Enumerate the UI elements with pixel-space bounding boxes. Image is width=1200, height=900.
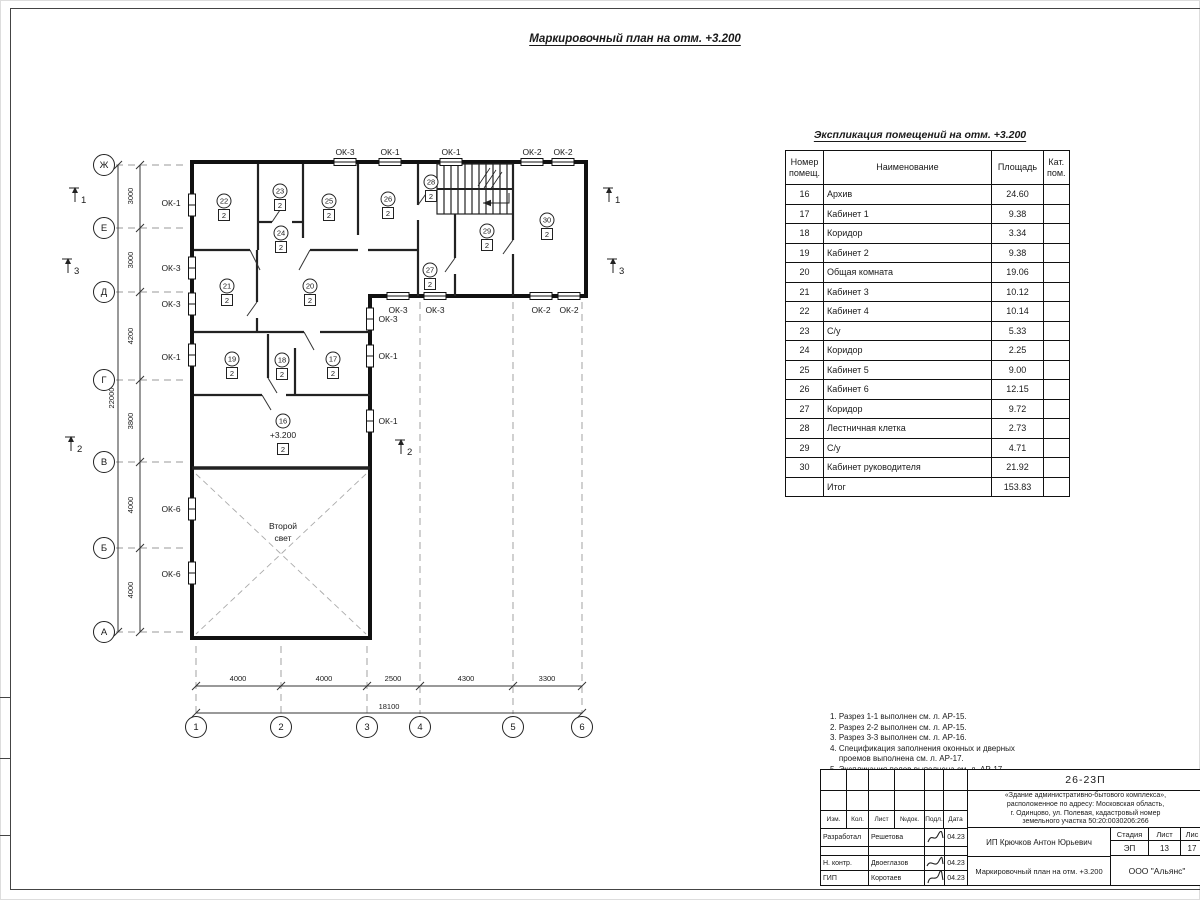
cell-name: Кабинет 2	[823, 243, 991, 263]
dimension-text: 4000	[316, 674, 333, 683]
role: Разработал	[821, 829, 869, 846]
project-code: 26-23П	[968, 770, 1200, 791]
window-label: ОК-3	[161, 299, 180, 309]
table-row: 28Лестничная клетка2.73	[786, 419, 1070, 439]
table-row: 18Коридор3.34	[786, 224, 1070, 244]
description-line: расположенное по адресу: Московская обла…	[968, 801, 1200, 810]
project-description: «Здание административно-бытового комплек…	[968, 791, 1200, 828]
table-row: 22Кабинет 410.14	[786, 302, 1070, 322]
sheet-number: 13	[1149, 841, 1181, 855]
signature-header-row: Изм. Кол. Лист №док. Подл. Дата	[821, 811, 967, 829]
axis-label: Г	[101, 375, 106, 386]
cell-num: 17	[786, 204, 824, 224]
sheet-title: Маркировочный план на отм. +3.200	[968, 857, 1110, 885]
cell-area: 5.33	[991, 321, 1043, 341]
cell-area: 153.83	[991, 477, 1043, 497]
axis-label: А	[101, 627, 108, 638]
room-category: 2	[281, 445, 285, 454]
table-header-row: Номер помещ. Наименование Площадь Кат. п…	[786, 151, 1070, 185]
dimension-text: 4000	[126, 497, 135, 514]
window-label: ОК-3	[161, 263, 180, 273]
table-row: 29С/у4.71	[786, 438, 1070, 458]
window-label: ОК-2	[522, 147, 541, 157]
dimension-text: 2500	[385, 674, 402, 683]
signature-row: Н. контр. Двоеглазов 04.23	[821, 856, 967, 871]
window-label: ОК-1	[378, 351, 397, 361]
sign-date: 04.23	[945, 829, 967, 846]
axis-label: 1	[193, 722, 198, 733]
window-label: ОК-1	[161, 352, 180, 362]
cell-num: 20	[786, 263, 824, 283]
cell-name: С/у	[823, 321, 991, 341]
cell-area: 2.25	[991, 341, 1043, 361]
dimension-text: 4000	[230, 674, 247, 683]
table-row: 23С/у5.33	[786, 321, 1070, 341]
sheet-label: Лист	[1149, 828, 1181, 840]
cell-area: 19.06	[991, 263, 1043, 283]
cell-cat	[1043, 360, 1069, 380]
cell-num: 24	[786, 341, 824, 361]
cell-area: 9.38	[991, 243, 1043, 263]
title-block-right: 26-23П «Здание административно-бытового …	[968, 770, 1200, 885]
role: Н. контр.	[821, 856, 869, 870]
table-row: 24Коридор2.25	[786, 341, 1070, 361]
cell-area: 3.34	[991, 224, 1043, 244]
dimension-text: 3300	[539, 674, 556, 683]
axis-label: Е	[101, 223, 107, 234]
cell-num: 29	[786, 438, 824, 458]
role: ГИП	[821, 871, 869, 885]
dimension-text: 4200	[126, 328, 135, 345]
cell-num: 26	[786, 380, 824, 400]
cell-name: Лестничная клетка	[823, 419, 991, 439]
window-label: ОК-1	[161, 198, 180, 208]
room-category: 2	[222, 211, 226, 220]
col-ndok: №док.	[895, 811, 925, 828]
cell-cat	[1043, 263, 1069, 283]
dimension-lines	[114, 161, 586, 717]
window-label: ОК-3	[335, 147, 354, 157]
room-category: 2	[279, 243, 283, 252]
axis-label: 6	[579, 722, 584, 733]
cell-num: 28	[786, 419, 824, 439]
cell-name: Кабинет 1	[823, 204, 991, 224]
window-label: ОК-6	[161, 504, 180, 514]
axis-label: В	[101, 457, 107, 468]
window-label: ОК-1	[441, 147, 460, 157]
axis-label: 3	[364, 722, 369, 733]
explication-table: Номер помещ. Наименование Площадь Кат. п…	[785, 150, 1070, 497]
table-row: 20Общая комната19.06	[786, 263, 1070, 283]
signature-row: Разработал Решетова 04.23	[821, 829, 967, 847]
section-number: 2	[77, 444, 82, 455]
person-name: Двоеглазов	[869, 856, 925, 870]
notes: 1. Разрез 1-1 выполнен см. л. АР-15.2. Р…	[830, 712, 1015, 775]
room-number: 29	[483, 227, 491, 236]
window-label: ОК-2	[553, 147, 572, 157]
table-row: 26Кабинет 612.15	[786, 380, 1070, 400]
room-number: 24	[277, 229, 285, 238]
window-label: ОК-3	[425, 305, 444, 315]
table-row: 25Кабинет 59.00	[786, 360, 1070, 380]
signature-table: Изм. Кол. Лист №док. Подл. Дата Разработ…	[821, 770, 968, 885]
cell-name: Кабинет 6	[823, 380, 991, 400]
note-line: 2. Разрез 2-2 выполнен см. л. АР-15.	[830, 723, 1015, 734]
void-diagonals	[196, 474, 366, 634]
cell-name: Кабинет 3	[823, 282, 991, 302]
client-name: ИП Крючков Антон Юрьевич	[968, 828, 1110, 857]
dimension-total: 22000	[107, 388, 116, 409]
cell-name: Итог	[823, 477, 991, 497]
description-line: земельного участка 50:20:0030206:266	[968, 818, 1200, 827]
cell-cat	[1043, 438, 1069, 458]
person-name: Решетова	[869, 829, 925, 846]
cell-cat	[1043, 399, 1069, 419]
windows	[189, 159, 581, 585]
cell-area: 2.73	[991, 419, 1043, 439]
cell-area: 9.72	[991, 399, 1043, 419]
cell-area: 10.14	[991, 302, 1043, 322]
cell-cat	[1043, 282, 1069, 302]
cell-name: Кабинет 4	[823, 302, 991, 322]
col-list: Лист	[869, 811, 895, 828]
cell-num	[786, 477, 824, 497]
axis-label: 4	[417, 722, 422, 733]
cell-num: 27	[786, 399, 824, 419]
cell-cat	[1043, 224, 1069, 244]
stage-values: ЭП 13 17	[1111, 841, 1200, 856]
section-number: 2	[407, 447, 412, 458]
cell-area: 21.92	[991, 458, 1043, 478]
cell-name: Общая комната	[823, 263, 991, 283]
explication-rows: 16Архив24.6017Кабинет 19.3818Коридор3.34…	[786, 185, 1070, 497]
dimension-text: 3800	[126, 413, 135, 430]
section-number: 3	[619, 266, 624, 277]
cell-name: Кабинет 5	[823, 360, 991, 380]
exterior-walls	[190, 160, 588, 640]
table-row: 17Кабинет 19.38	[786, 204, 1070, 224]
cell-cat	[1043, 458, 1069, 478]
cell-cat	[1043, 204, 1069, 224]
signature-scribble	[925, 871, 945, 885]
room-number: 26	[384, 195, 392, 204]
room-category: 2	[545, 230, 549, 239]
cell-cat	[1043, 419, 1069, 439]
cell-name: Кабинет руководителя	[823, 458, 991, 478]
cell-area: 10.12	[991, 282, 1043, 302]
room-number: 17	[329, 355, 337, 364]
room-category: 2	[327, 211, 331, 220]
dimension-text: 4300	[458, 674, 475, 683]
sheets-total: 17	[1181, 841, 1200, 855]
cell-num: 21	[786, 282, 824, 302]
dimension-text: 4000	[126, 582, 135, 599]
title-block: Изм. Кол. Лист №док. Подл. Дата Разработ…	[820, 769, 1200, 886]
window-label: ОК-2	[531, 305, 550, 315]
header-number: Номер помещ.	[786, 151, 824, 185]
description-line: «Здание административно-бытового комплек…	[968, 792, 1200, 801]
room-number: 22	[220, 197, 228, 206]
person-name: Коротаев	[869, 871, 925, 885]
note-line: проемов выполнена см. л. АР-17.	[830, 754, 1015, 765]
cell-cat	[1043, 243, 1069, 263]
room-number: 21	[223, 282, 231, 291]
room-number: 18	[278, 356, 286, 365]
room-category: 2	[225, 296, 229, 305]
cell-area: 4.71	[991, 438, 1043, 458]
table-row: 30Кабинет руководителя21.92	[786, 458, 1070, 478]
col-izm: Изм.	[821, 811, 847, 828]
section-number: 1	[615, 195, 620, 206]
revision-row	[821, 770, 967, 791]
empty-row	[821, 847, 967, 856]
cell-cat	[1043, 380, 1069, 400]
room-category: 2	[429, 192, 433, 201]
sheets-label: Лис	[1181, 828, 1200, 840]
col-data: Дата	[944, 811, 967, 828]
cell-num: 23	[786, 321, 824, 341]
room-category: 2	[485, 241, 489, 250]
stage-header: Стадия Лист Лис	[1111, 828, 1200, 841]
cell-cat	[1043, 185, 1069, 205]
dimension-text: 3000	[126, 252, 135, 269]
cell-num: 25	[786, 360, 824, 380]
elevation-mark: +3.200	[270, 430, 297, 440]
room-category: 2	[230, 369, 234, 378]
section-number: 1	[81, 195, 86, 206]
plan-text: Второй	[269, 521, 297, 531]
cell-area: 9.00	[991, 360, 1043, 380]
table-row: 16Архив24.60	[786, 185, 1070, 205]
cell-area: 12.15	[991, 380, 1043, 400]
cell-cat	[1043, 321, 1069, 341]
plan-dynamic: ЖЕДГВБА123456300030004200380040004000220…	[62, 147, 624, 738]
axis-label: Ж	[100, 160, 109, 171]
note-line: 1. Разрез 1-1 выполнен см. л. АР-15.	[830, 712, 1015, 723]
grid-lines	[116, 165, 582, 714]
axis-label: Д	[101, 287, 108, 298]
room-category: 2	[278, 201, 282, 210]
cell-name: Коридор	[823, 399, 991, 419]
cell-num: 30	[786, 458, 824, 478]
header-category: Кат. пом.	[1043, 151, 1069, 185]
room-category: 2	[331, 369, 335, 378]
table-row: 19Кабинет 29.38	[786, 243, 1070, 263]
room-category: 2	[428, 280, 432, 289]
sign-date: 04.23	[945, 871, 967, 885]
cell-num: 22	[786, 302, 824, 322]
room-number: 19	[228, 355, 236, 364]
cell-num: 18	[786, 224, 824, 244]
stair-arrow	[483, 200, 491, 206]
dimension-text: 3000	[126, 188, 135, 205]
cell-name: Коридор	[823, 224, 991, 244]
section-number: 3	[74, 266, 79, 277]
axis-label: 2	[278, 722, 283, 733]
sign-date: 04.23	[945, 856, 967, 870]
revision-row	[821, 791, 967, 811]
room-number: 25	[325, 197, 333, 206]
table-row: 27Коридор9.72	[786, 399, 1070, 419]
room-category: 2	[280, 370, 284, 379]
cell-num: 16	[786, 185, 824, 205]
cell-cat	[1043, 302, 1069, 322]
window-label: ОК-6	[161, 569, 180, 579]
signature-scribble	[925, 856, 945, 870]
window-label: ОК-3	[378, 314, 397, 324]
drawing-sheet: Маркировочный план на отм. +3.200 Экспли…	[0, 0, 1200, 900]
note-line: 4. Спецификация заполнения оконных и две…	[830, 744, 1015, 755]
cell-num: 19	[786, 243, 824, 263]
room-category: 2	[386, 209, 390, 218]
room-number: 20	[306, 282, 314, 291]
cell-name: Коридор	[823, 341, 991, 361]
axis-label: 5	[510, 722, 515, 733]
col-podl: Подл.	[925, 811, 944, 828]
col-kol: Кол.	[847, 811, 869, 828]
dimension-total: 18100	[379, 702, 400, 711]
staircase	[437, 164, 513, 214]
cell-name: Архив	[823, 185, 991, 205]
stage-label: Стадия	[1111, 828, 1149, 840]
table-row: 21Кабинет 310.12	[786, 282, 1070, 302]
signature-scribble	[925, 829, 945, 846]
room-number: 28	[427, 178, 435, 187]
window-label: ОК-1	[378, 416, 397, 426]
room-category: 2	[308, 296, 312, 305]
stage-value: ЭП	[1111, 841, 1149, 855]
description-line: г. Одинцово, ул. Полевая, кадастровый но…	[968, 810, 1200, 819]
room-number: 23	[276, 187, 284, 196]
header-name: Наименование	[823, 151, 991, 185]
room-number: 16	[279, 417, 287, 426]
signature-row: ГИП Коротаев 04.23	[821, 871, 967, 885]
window-label: ОК-1	[380, 147, 399, 157]
plan-text: свет	[274, 533, 291, 543]
header-area: Площадь	[991, 151, 1043, 185]
note-line: 3. Разрез 3-3 выполнен см. л. АР-16.	[830, 733, 1015, 744]
cell-area: 24.60	[991, 185, 1043, 205]
room-number: 27	[426, 266, 434, 275]
cell-area: 9.38	[991, 204, 1043, 224]
axis-label: Б	[101, 543, 107, 554]
table-total-row: Итог153.83	[786, 477, 1070, 497]
cell-name: С/у	[823, 438, 991, 458]
cell-cat	[1043, 341, 1069, 361]
window-label: ОК-2	[559, 305, 578, 315]
room-number: 30	[543, 216, 551, 225]
company-name: ООО "Альянс"	[1111, 856, 1200, 885]
cell-cat	[1043, 477, 1069, 497]
